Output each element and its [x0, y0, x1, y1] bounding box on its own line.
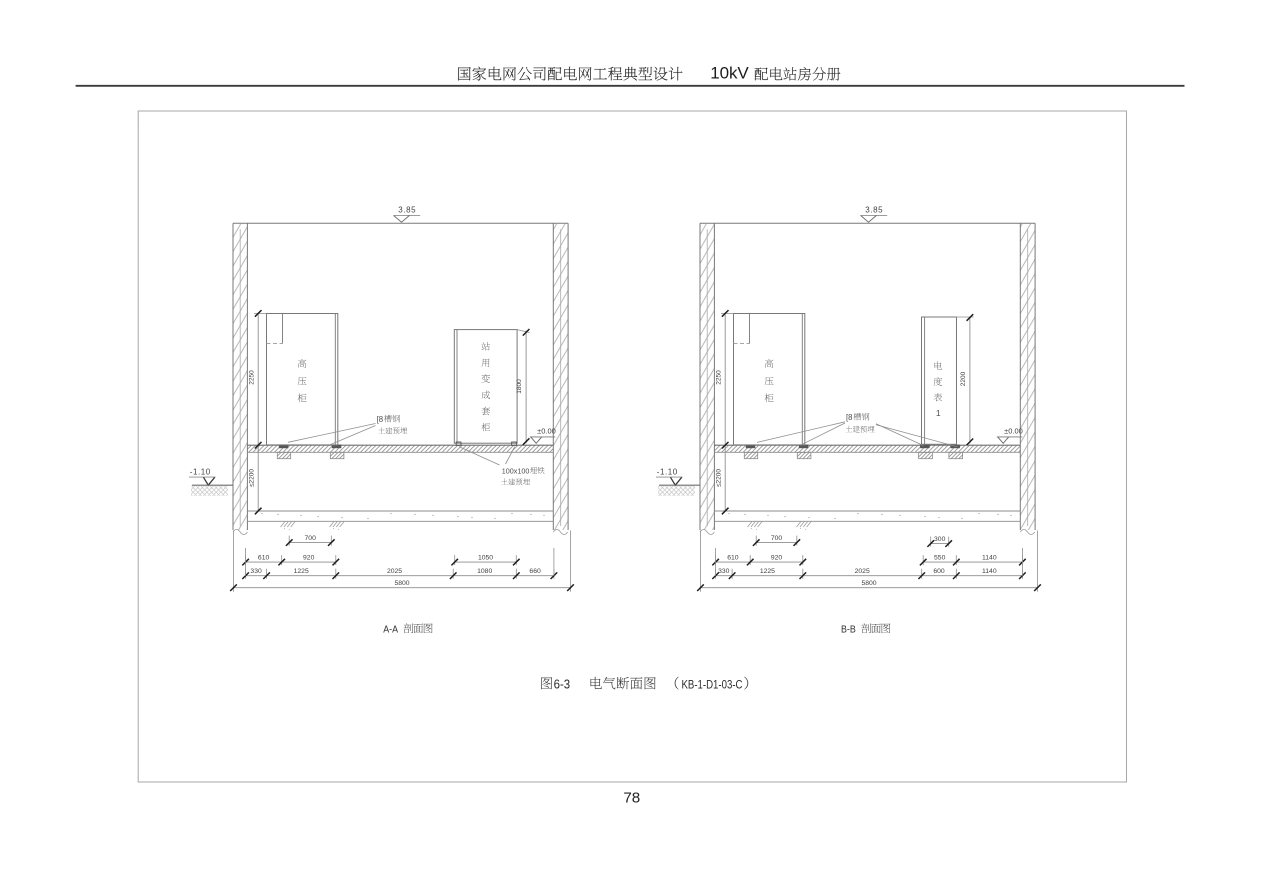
svg-text:2250: 2250 — [716, 370, 723, 385]
svg-text:550: 550 — [934, 555, 946, 562]
svg-text:2200: 2200 — [960, 371, 967, 386]
svg-text:920: 920 — [771, 555, 783, 562]
svg-text:660: 660 — [529, 568, 541, 575]
svg-text:10kV: 10kV — [710, 64, 749, 83]
svg-text:1225: 1225 — [760, 568, 775, 575]
svg-text:[8: [8 — [846, 413, 853, 422]
svg-text:1140: 1140 — [982, 555, 997, 562]
svg-text:-1.10: -1.10 — [190, 467, 211, 476]
svg-text:330: 330 — [718, 568, 730, 575]
svg-text:±0.00: ±0.00 — [537, 426, 556, 435]
svg-text:6-3: 6-3 — [554, 677, 571, 691]
svg-text:2250: 2250 — [249, 370, 256, 385]
svg-text:1: 1 — [936, 408, 941, 418]
svg-text:[8: [8 — [377, 415, 384, 424]
svg-text:100x100: 100x100 — [502, 466, 530, 475]
svg-text:3.85: 3.85 — [865, 205, 883, 214]
svg-text:5800: 5800 — [861, 580, 876, 587]
svg-text:-1.10: -1.10 — [657, 467, 678, 476]
svg-text:300: 300 — [934, 536, 946, 543]
svg-text:2025: 2025 — [387, 568, 402, 575]
svg-text:1800: 1800 — [516, 379, 523, 394]
svg-text:1050: 1050 — [478, 555, 493, 562]
svg-text:B-B: B-B — [841, 624, 856, 635]
svg-text:≤2200: ≤2200 — [716, 469, 723, 487]
svg-text:5800: 5800 — [394, 580, 409, 587]
svg-text:1140: 1140 — [982, 568, 997, 575]
svg-text:330: 330 — [250, 568, 262, 575]
svg-text:KB-1-D1-03-C: KB-1-D1-03-C — [682, 677, 743, 691]
svg-text:3.85: 3.85 — [398, 205, 416, 214]
svg-text:1225: 1225 — [294, 568, 309, 575]
svg-text:1080: 1080 — [477, 568, 492, 575]
svg-text:±0.00: ±0.00 — [1004, 426, 1023, 435]
svg-text:610: 610 — [258, 555, 270, 562]
svg-text:920: 920 — [303, 555, 315, 562]
svg-text:600: 600 — [933, 568, 945, 575]
svg-text:≤2200: ≤2200 — [249, 469, 256, 487]
svg-text:2025: 2025 — [855, 568, 870, 575]
svg-text:78: 78 — [623, 789, 640, 806]
svg-text:700: 700 — [305, 535, 317, 542]
svg-text:700: 700 — [771, 535, 783, 542]
svg-text:610: 610 — [727, 555, 739, 562]
svg-text:A-A: A-A — [383, 624, 398, 635]
